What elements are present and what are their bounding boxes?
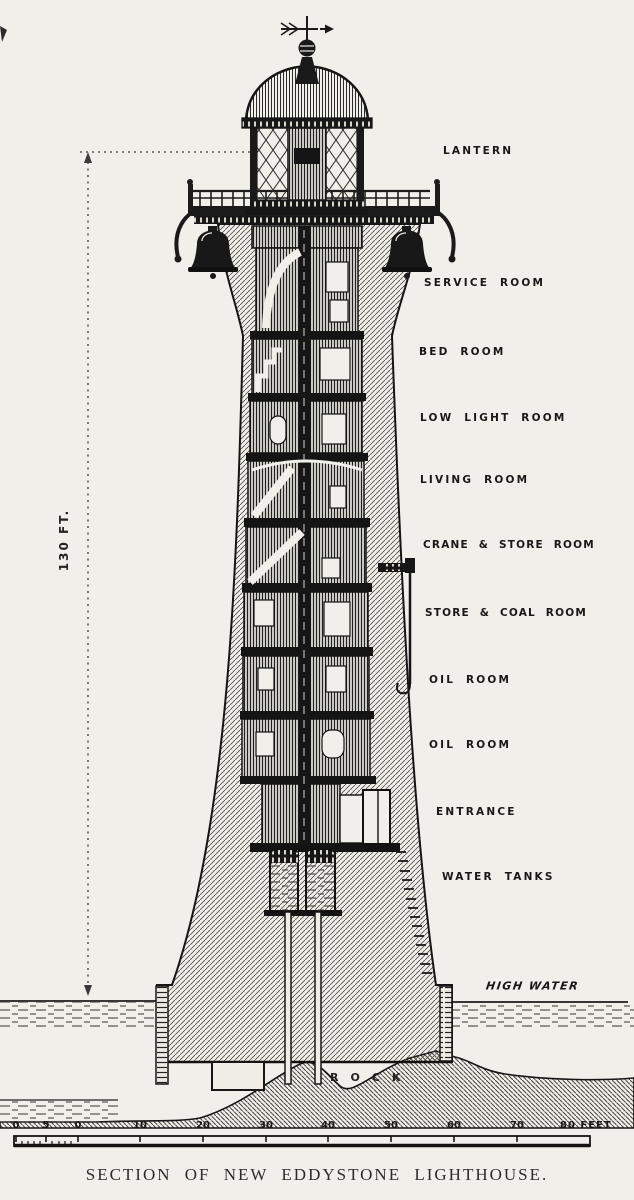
label-oil-room-1: OIL ROOM [429, 674, 511, 686]
scale-tick-5: 5 [31, 1120, 61, 1131]
engraved-plate: LANTERN SERVICE ROOM BED ROOM LOW LIGHT … [0, 0, 634, 1200]
scale-tick-10: 10 [125, 1120, 155, 1131]
figure-caption: SECTION OF NEW EDDYSTONE LIGHTHOUSE. [0, 1165, 634, 1185]
label-high-water: HIGH WATER [485, 980, 580, 993]
base-edge-left [156, 986, 168, 1084]
label-service-room: SERVICE ROOM [424, 277, 545, 289]
scale-bar [0, 1130, 634, 1160]
scale-tick-0a: 0 [1, 1120, 31, 1131]
plate-mark [0, 26, 7, 42]
label-oil-room-2: OIL ROOM [429, 739, 511, 751]
label-entrance: ENTRANCE [436, 806, 517, 818]
label-store-coal-room: STORE & COAL ROOM [425, 607, 587, 619]
label-water-tanks: WATER TANKS [442, 871, 555, 883]
label-height-130ft: 130 FT. [24, 500, 104, 580]
scale-end-80-feet: 80 FEET [560, 1120, 612, 1131]
scale-tick-20: 20 [188, 1120, 218, 1131]
label-low-light-room: LOW LIGHT ROOM [420, 412, 567, 424]
scale-tick-60: 60 [439, 1120, 469, 1131]
scale-tick-50: 50 [376, 1120, 406, 1131]
label-crane-store-room: CRANE & STORE ROOM [423, 539, 595, 551]
label-rock: ROCK [330, 1071, 412, 1084]
label-lantern: LANTERN [443, 145, 513, 157]
scale-tick-40: 40 [313, 1120, 343, 1131]
label-living-room: LIVING ROOM [420, 474, 529, 486]
sea-right [453, 1002, 634, 1028]
lantern-room [246, 128, 368, 215]
base-edge-right [440, 986, 452, 1061]
lantern-dome [242, 57, 372, 128]
foundation-step [212, 1062, 264, 1090]
lighthouse-section-drawing [0, 0, 634, 1200]
label-bed-room: BED ROOM [419, 346, 506, 358]
scale-tick-70: 70 [502, 1120, 532, 1131]
scale-tick-0b: 0 [63, 1120, 93, 1131]
weather-vane-icon [281, 16, 334, 57]
sea-left [0, 1001, 157, 1028]
scale-tick-30: 30 [251, 1120, 281, 1131]
entrance-doorway [340, 790, 390, 844]
